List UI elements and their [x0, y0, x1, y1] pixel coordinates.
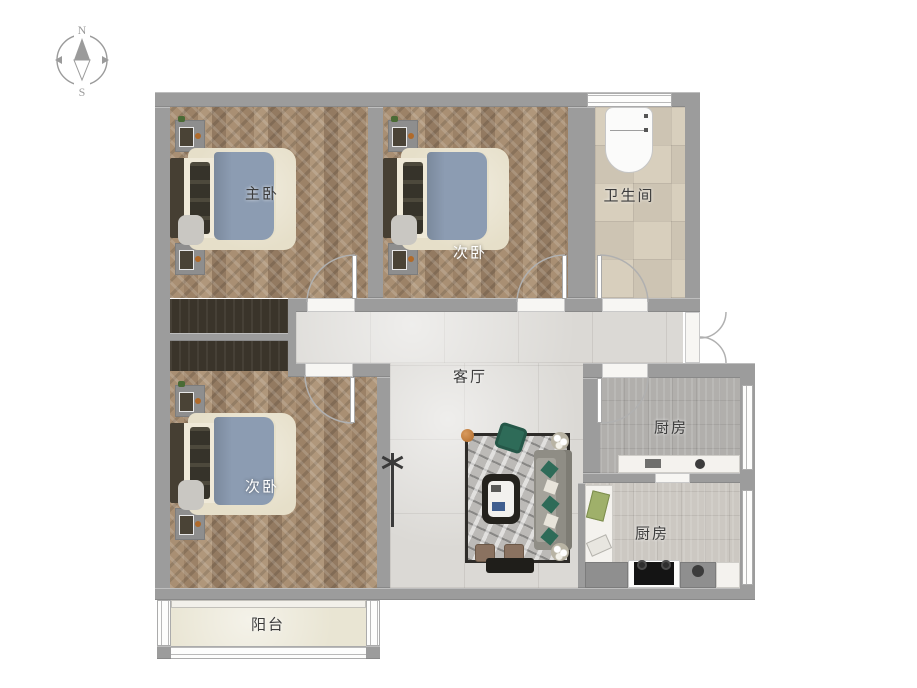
plant-icon [391, 116, 398, 122]
plant-icon [178, 381, 185, 387]
balcony-window-bottom [157, 646, 380, 659]
flower-pot [551, 543, 569, 561]
kitchen-sink [692, 565, 704, 577]
bed-group-master [170, 107, 368, 298]
label-bedroom-top: 次卧 [453, 246, 487, 261]
bed-blanket [427, 152, 487, 240]
kitchen-lower-counter-right [716, 562, 740, 588]
label-bathroom: 卫生间 [603, 189, 654, 204]
tv-console [486, 558, 534, 573]
kitchen-cabinet [585, 562, 628, 588]
balcony-corner [157, 646, 171, 659]
bed-throw [178, 215, 204, 245]
bathroom-window [587, 93, 672, 107]
door-swing-arcs [0, 0, 917, 688]
label-kitchen-lower: 厨房 [635, 527, 669, 542]
balcony-corner [366, 646, 380, 659]
label-balcony: 阳台 [251, 618, 285, 633]
bed-throw [178, 480, 204, 510]
kitchen-upper-counter [618, 455, 740, 473]
balcony-window-left [157, 600, 171, 646]
kitchen-upper-faucet [695, 459, 705, 469]
balcony-sill [171, 600, 366, 608]
bed-throw [391, 215, 417, 245]
plant-icon [178, 116, 185, 122]
burner [661, 560, 671, 570]
decor-ball [461, 429, 474, 442]
kitchen-upper-window [742, 385, 753, 470]
balcony-window-right [366, 600, 380, 646]
kitchen-upper-item [645, 459, 661, 468]
coffee-table [482, 474, 520, 524]
label-kitchen-upper: 厨房 [654, 421, 688, 436]
floor-plan: N S [0, 0, 917, 688]
label-living-room: 客厅 [453, 370, 487, 385]
burner [637, 560, 647, 570]
label-bedroom-bottom: 次卧 [245, 480, 279, 495]
flower-pot [551, 432, 569, 450]
label-master-bedroom: 主卧 [245, 187, 279, 202]
bed-group-bedroom-top [383, 107, 568, 298]
bathtub [605, 107, 653, 173]
kitchen-lower-window [742, 490, 753, 585]
